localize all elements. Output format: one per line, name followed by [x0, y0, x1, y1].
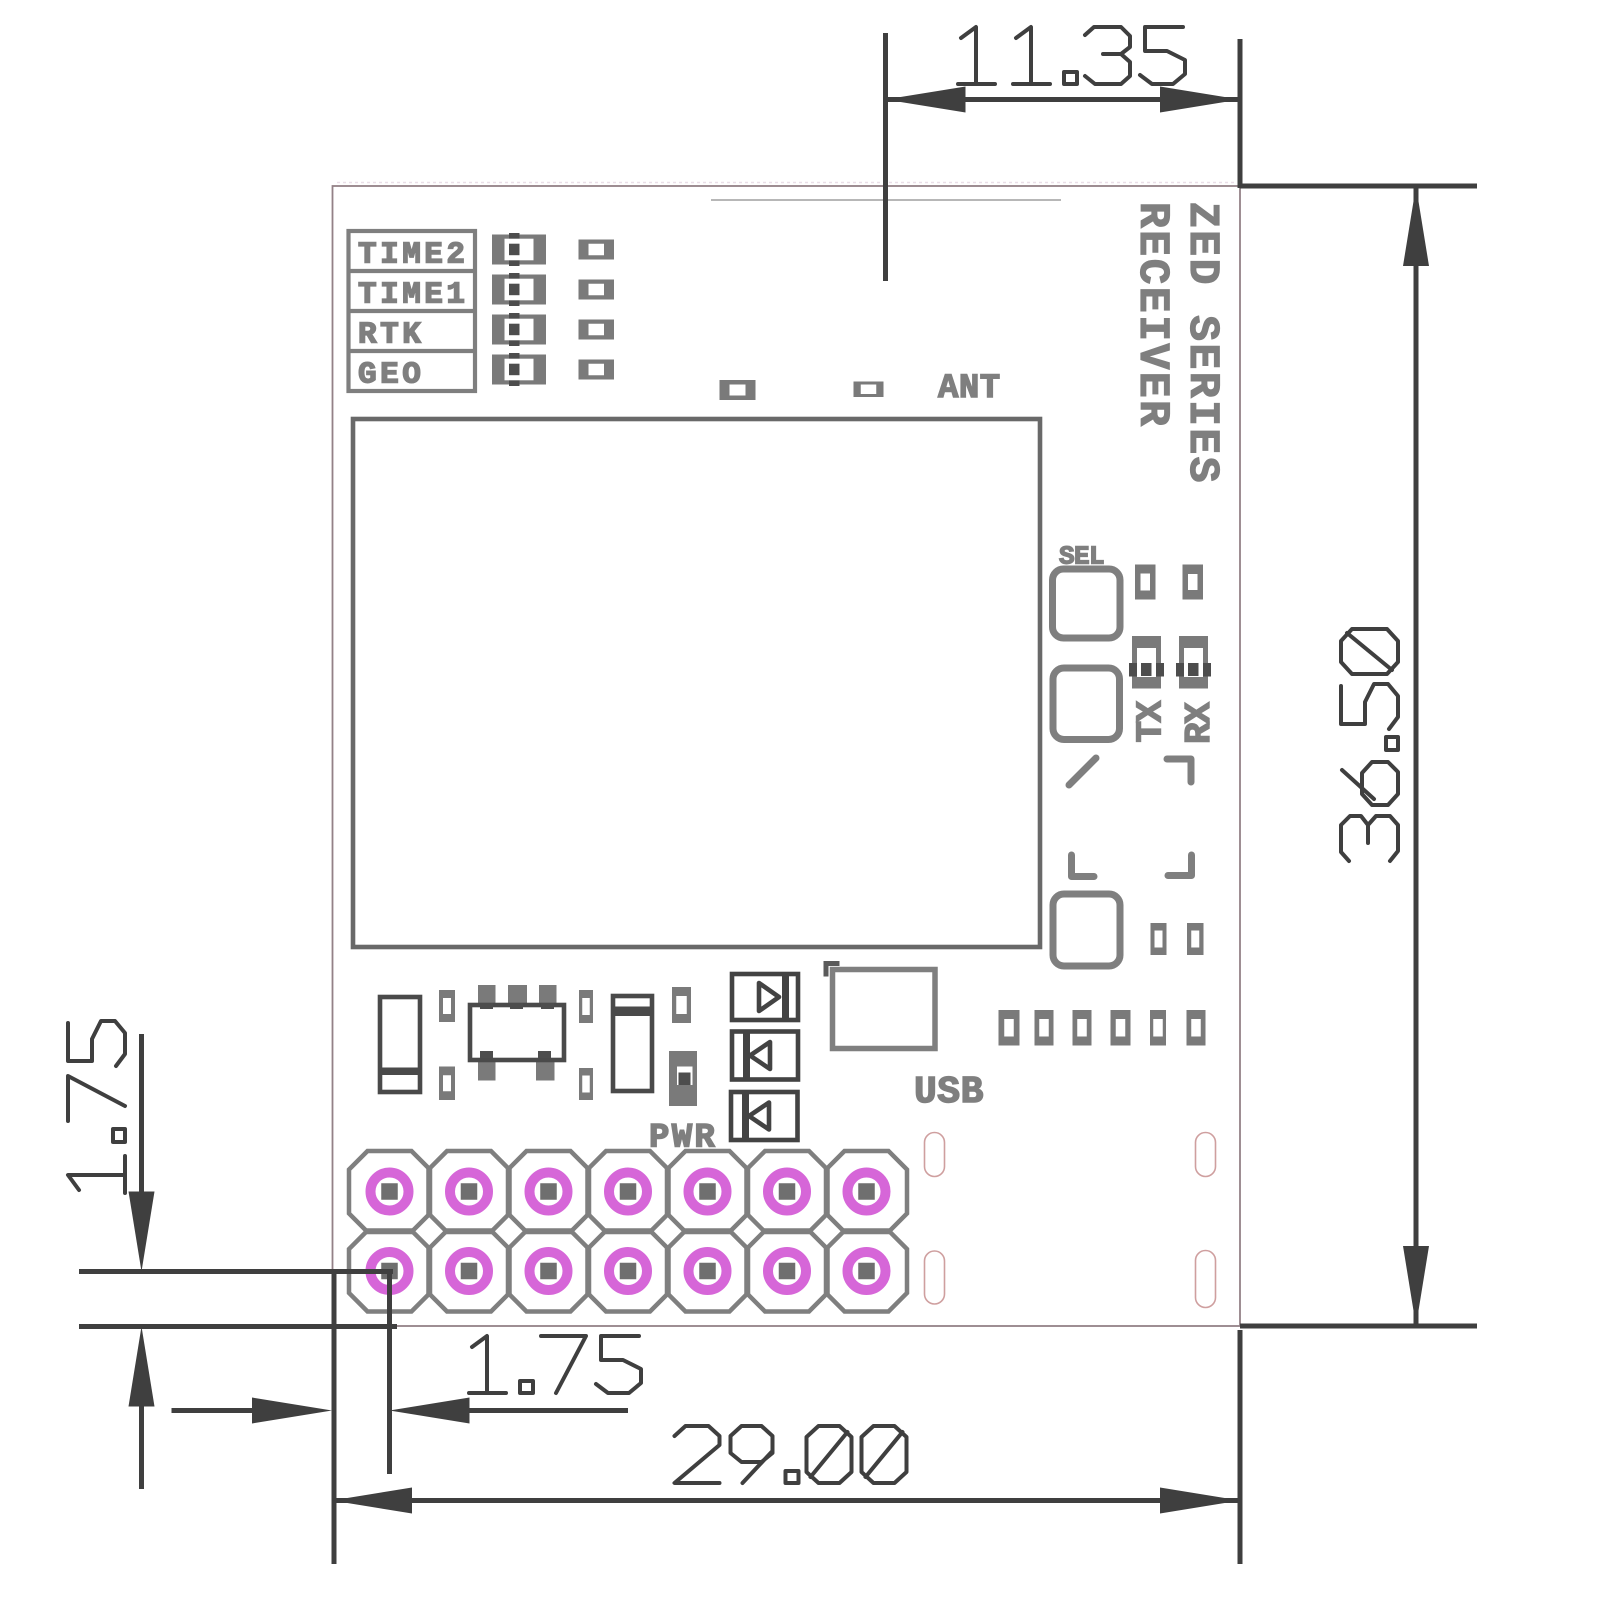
svg-text:RECEIVER: RECEIVER [1128, 202, 1177, 428]
svg-text:RTK: RTK [358, 318, 424, 353]
svg-text:ANT: ANT [938, 370, 1001, 408]
svg-text:RX: RX [1179, 702, 1220, 744]
svg-text:GEO: GEO [358, 358, 424, 393]
svg-text:TIME1: TIME1 [358, 278, 469, 313]
svg-text:TIME2: TIME2 [358, 238, 469, 273]
svg-text:USB: USB [914, 1071, 984, 1114]
svg-text:TX: TX [1131, 700, 1172, 742]
svg-text:ZED SERIES: ZED SERIES [1178, 202, 1227, 485]
